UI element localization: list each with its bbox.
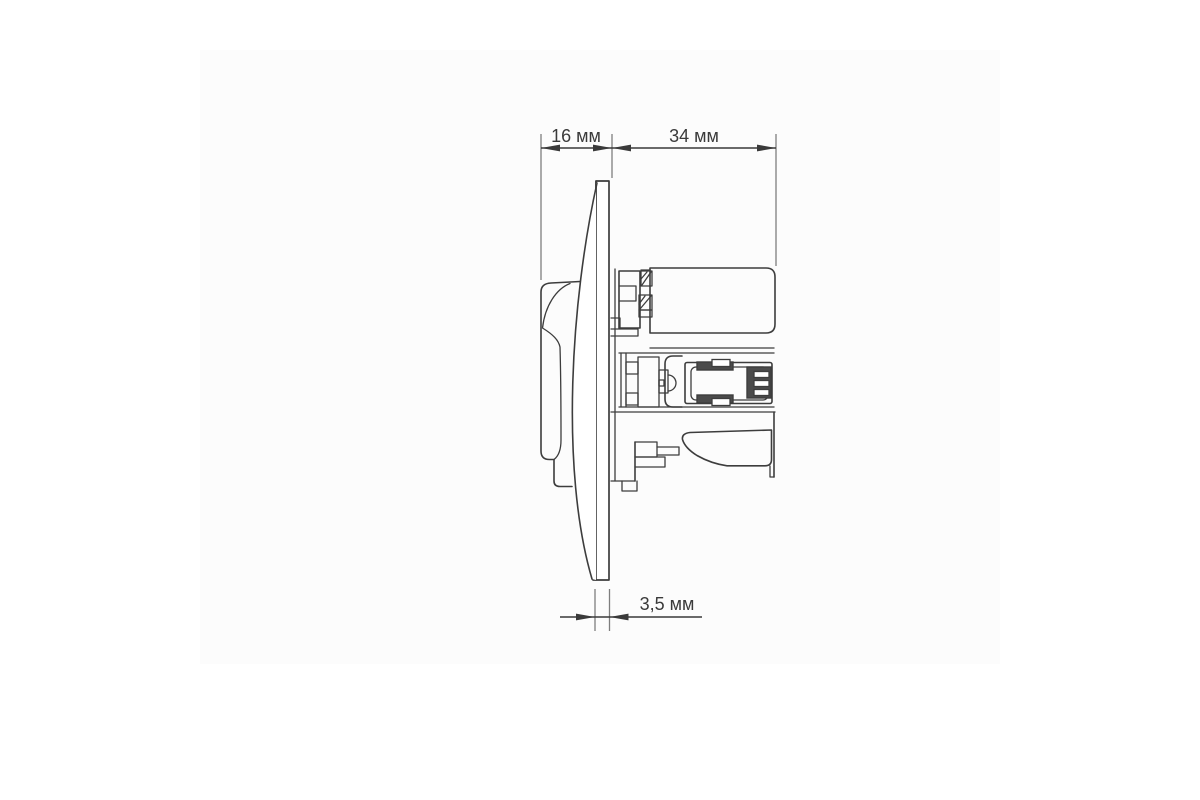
- dimension-label-mounting-depth: 34 мм: [669, 126, 719, 146]
- socket-side-view-drawing: 16 мм 34 мм 3,5 мм: [0, 0, 1200, 800]
- dimension-label-faceplate-thickness: 3,5 мм: [640, 594, 695, 614]
- dimension-label-front-projection: 16 мм: [551, 126, 601, 146]
- product-image-canvas: 16 мм 34 мм 3,5 мм: [0, 0, 1200, 800]
